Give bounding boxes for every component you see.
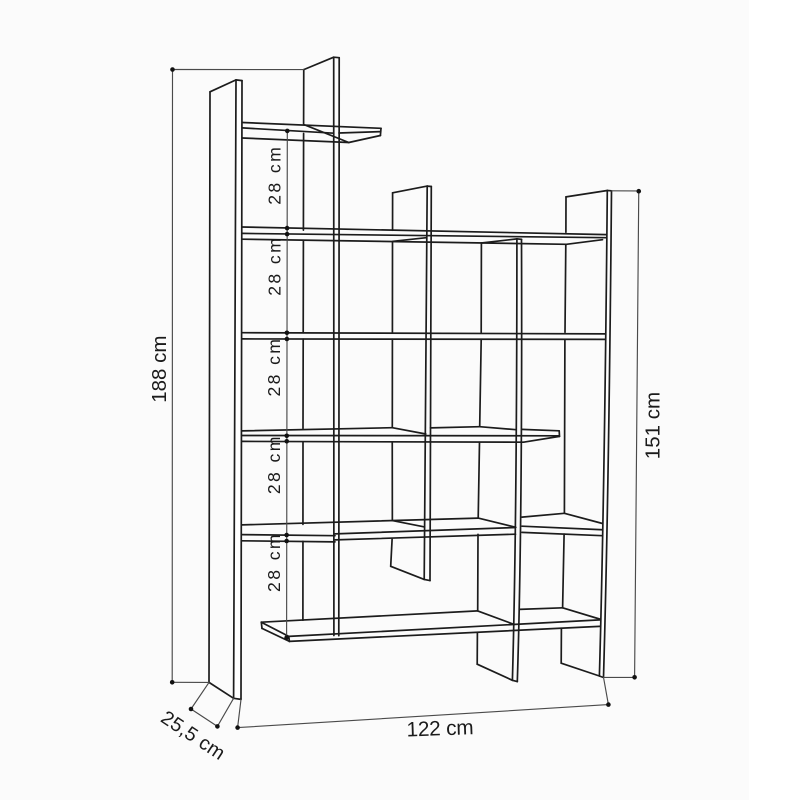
svg-text:151 cm: 151 cm (642, 392, 665, 459)
svg-text:28 cm: 28 cm (264, 145, 284, 205)
svg-text:28 cm: 28 cm (264, 434, 284, 494)
svg-text:28 cm: 28 cm (264, 236, 284, 296)
svg-text:188 cm: 188 cm (148, 336, 171, 403)
svg-text:28 cm: 28 cm (264, 337, 284, 397)
svg-text:28 cm: 28 cm (264, 532, 284, 592)
svg-text:122 cm: 122 cm (406, 716, 474, 741)
